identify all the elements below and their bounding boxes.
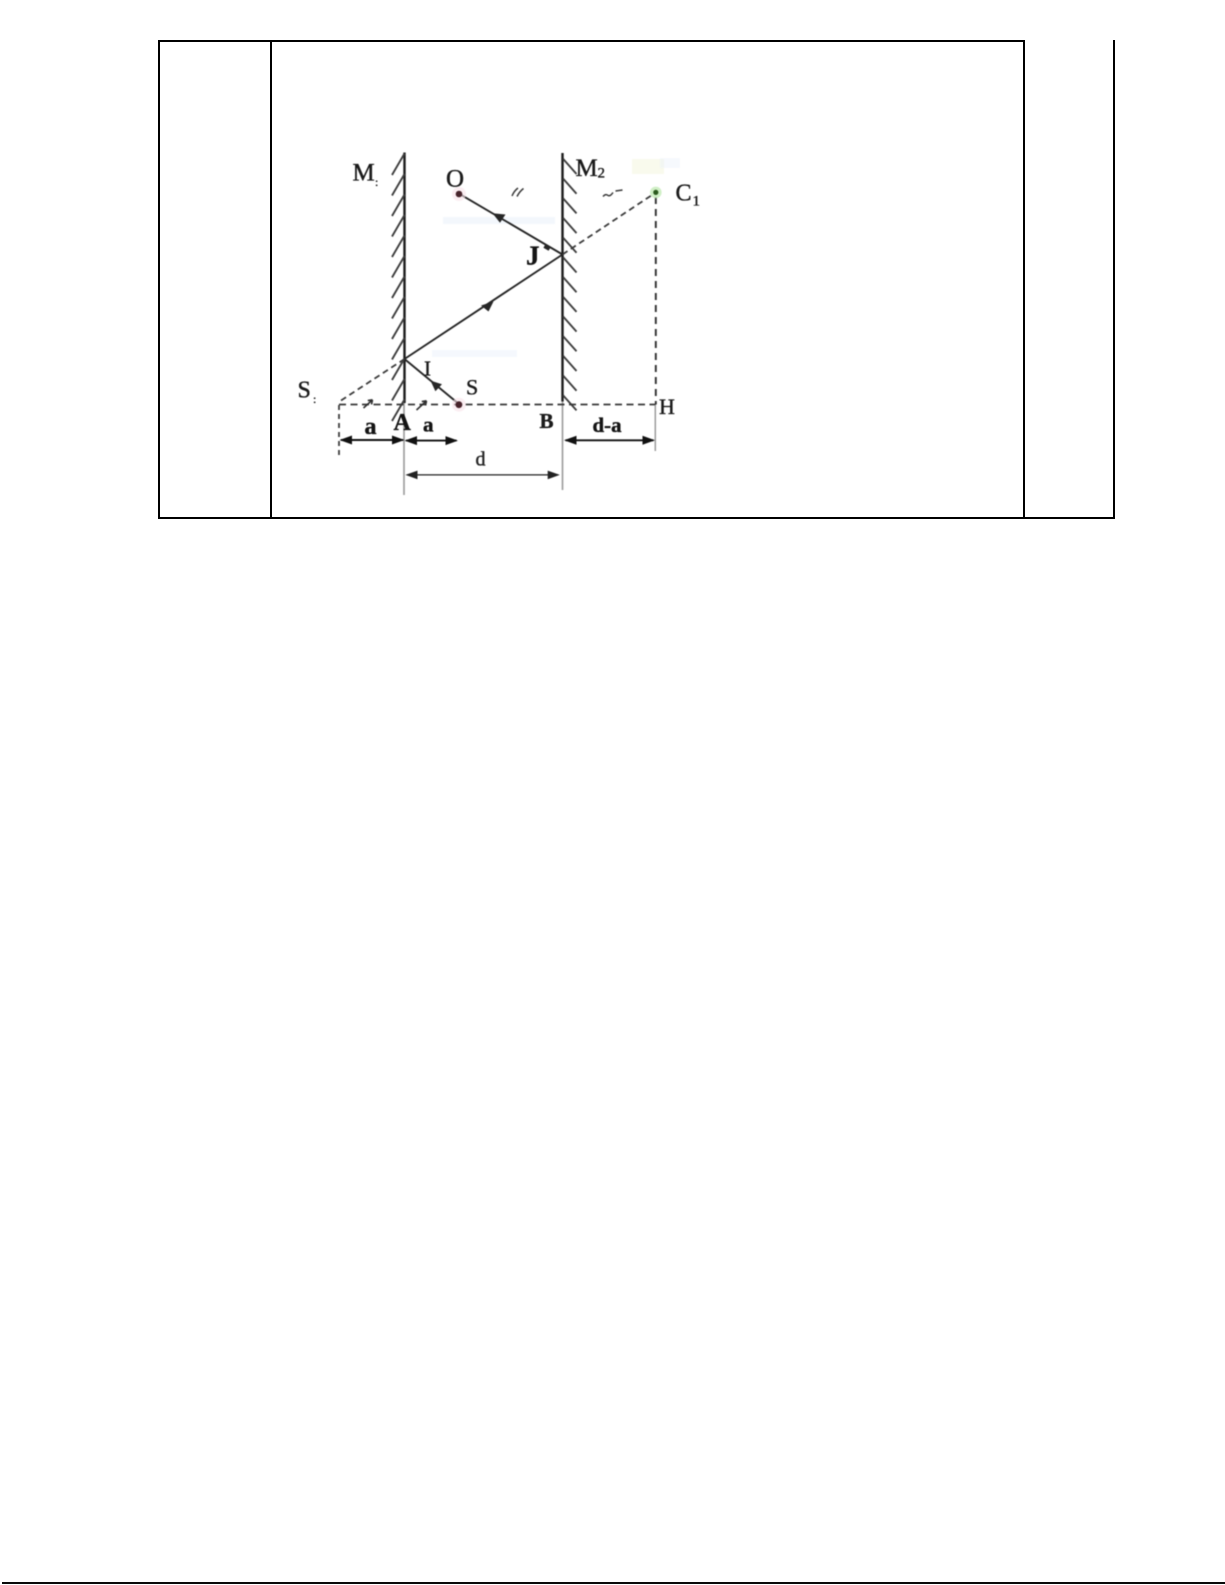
svg-text:d-a: d-a — [593, 413, 623, 437]
svg-text:A: A — [394, 410, 412, 436]
svg-text::: : — [313, 392, 316, 406]
svg-text:J: J — [526, 241, 540, 271]
svg-text:O: O — [446, 166, 464, 193]
svg-text:d: d — [476, 449, 486, 471]
svg-text:2: 2 — [598, 166, 606, 182]
svg-text:M: M — [576, 155, 598, 182]
svg-text:B: B — [540, 409, 554, 433]
svg-text:1: 1 — [693, 194, 701, 210]
svg-text:a: a — [423, 413, 434, 437]
svg-text:H: H — [659, 394, 675, 419]
svg-text:C: C — [676, 181, 692, 207]
svg-text:M: M — [353, 160, 375, 187]
svg-text:I: I — [424, 357, 431, 381]
svg-text:S: S — [298, 378, 311, 404]
svg-text:a: a — [365, 414, 377, 440]
svg-text:S: S — [466, 375, 478, 400]
svg-text::: : — [375, 175, 378, 189]
